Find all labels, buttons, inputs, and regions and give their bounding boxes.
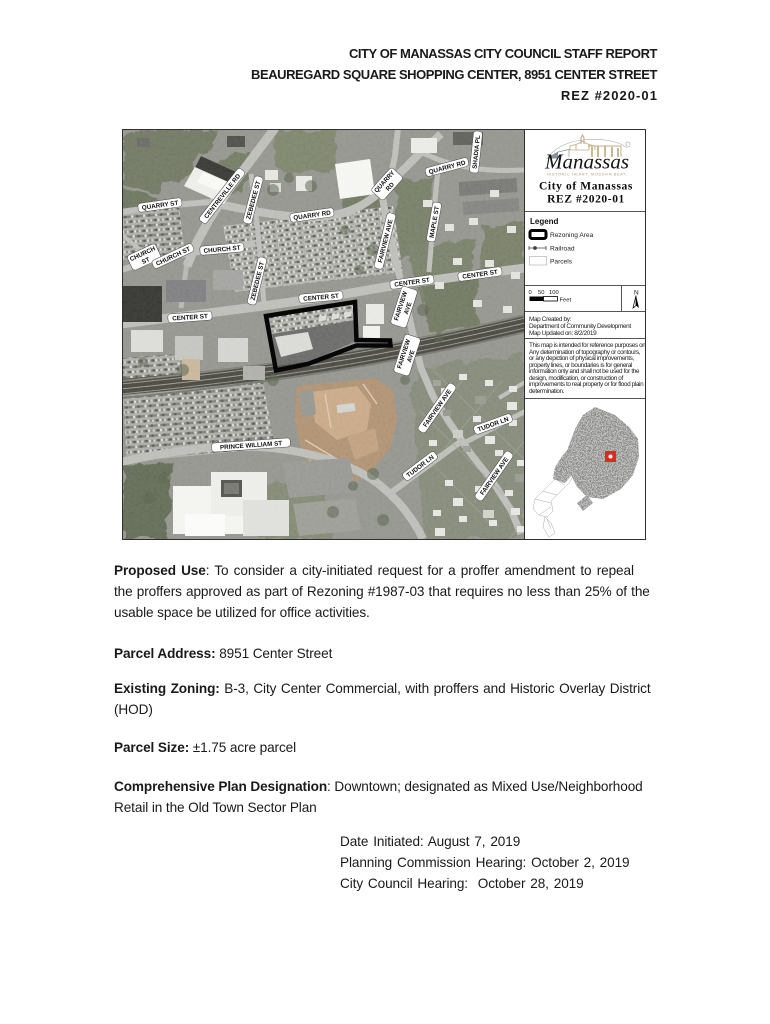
svg-text:City of Manassas: City of Manassas [539, 181, 633, 193]
svg-text:Manassas: Manassas [544, 150, 629, 174]
svg-text:HISTORIC HEART. MODERN BEAT.: HISTORIC HEART. MODERN BEAT. [547, 172, 628, 177]
svg-text:REZ #2020-01: REZ #2020-01 [547, 194, 625, 206]
svg-text:Railroad: Railroad [550, 246, 575, 253]
svg-text:Parcels: Parcels [550, 259, 573, 266]
svg-text:N: N [634, 290, 639, 297]
svg-text:Legend: Legend [530, 217, 559, 226]
svg-text:0: 0 [529, 290, 532, 296]
svg-text:Feet: Feet [560, 298, 572, 304]
svg-text:100: 100 [549, 290, 559, 296]
svg-text:50: 50 [538, 290, 544, 296]
svg-text:Rezoning Area: Rezoning Area [550, 232, 594, 239]
